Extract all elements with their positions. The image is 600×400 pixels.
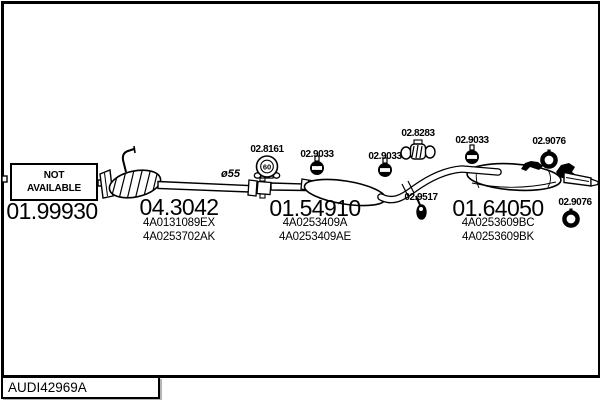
part-code: 4A0253702AK — [133, 231, 225, 243]
pipe-diameter-label: ø55 — [221, 168, 240, 180]
fitting-label-hanger-mid-rear: 02.9033 — [362, 151, 408, 162]
fitting-label-rear-clamp: 02.8283 — [395, 128, 441, 139]
fitting-label-front-clamp: 02.8161 — [244, 144, 290, 155]
part-code: 4A0253609BC — [447, 217, 549, 229]
parts-diagram-page: { "title_block": { "drawing_id": "AUDI42… — [0, 0, 600, 400]
fitting-label-ring-rear-top: 02.9076 — [526, 136, 572, 147]
part-code: 4A0131089EX — [133, 217, 225, 229]
title-block: AUDI42969A — [1, 376, 160, 399]
part-code: 4A0253409AE — [264, 231, 366, 243]
fitting-label-hanger-rear: 02.9033 — [449, 135, 495, 146]
fitting-label-mount-rear: 02.9517 — [398, 192, 444, 203]
not-available-box: NOT AVAILABLE — [10, 163, 98, 201]
not-available-label: NOT AVAILABLE — [23, 169, 85, 195]
part-number-front-pipe: 01.99930 — [4, 198, 100, 225]
fitting-label-hanger-mid-front: 02.9033 — [294, 149, 340, 160]
drawing-id: AUDI42969A — [8, 380, 87, 395]
part-code: 4A0253409A — [264, 217, 366, 229]
fitting-label-ring-tail: 02.9076 — [552, 197, 598, 208]
part-code: 4A0253609BK — [447, 231, 549, 243]
